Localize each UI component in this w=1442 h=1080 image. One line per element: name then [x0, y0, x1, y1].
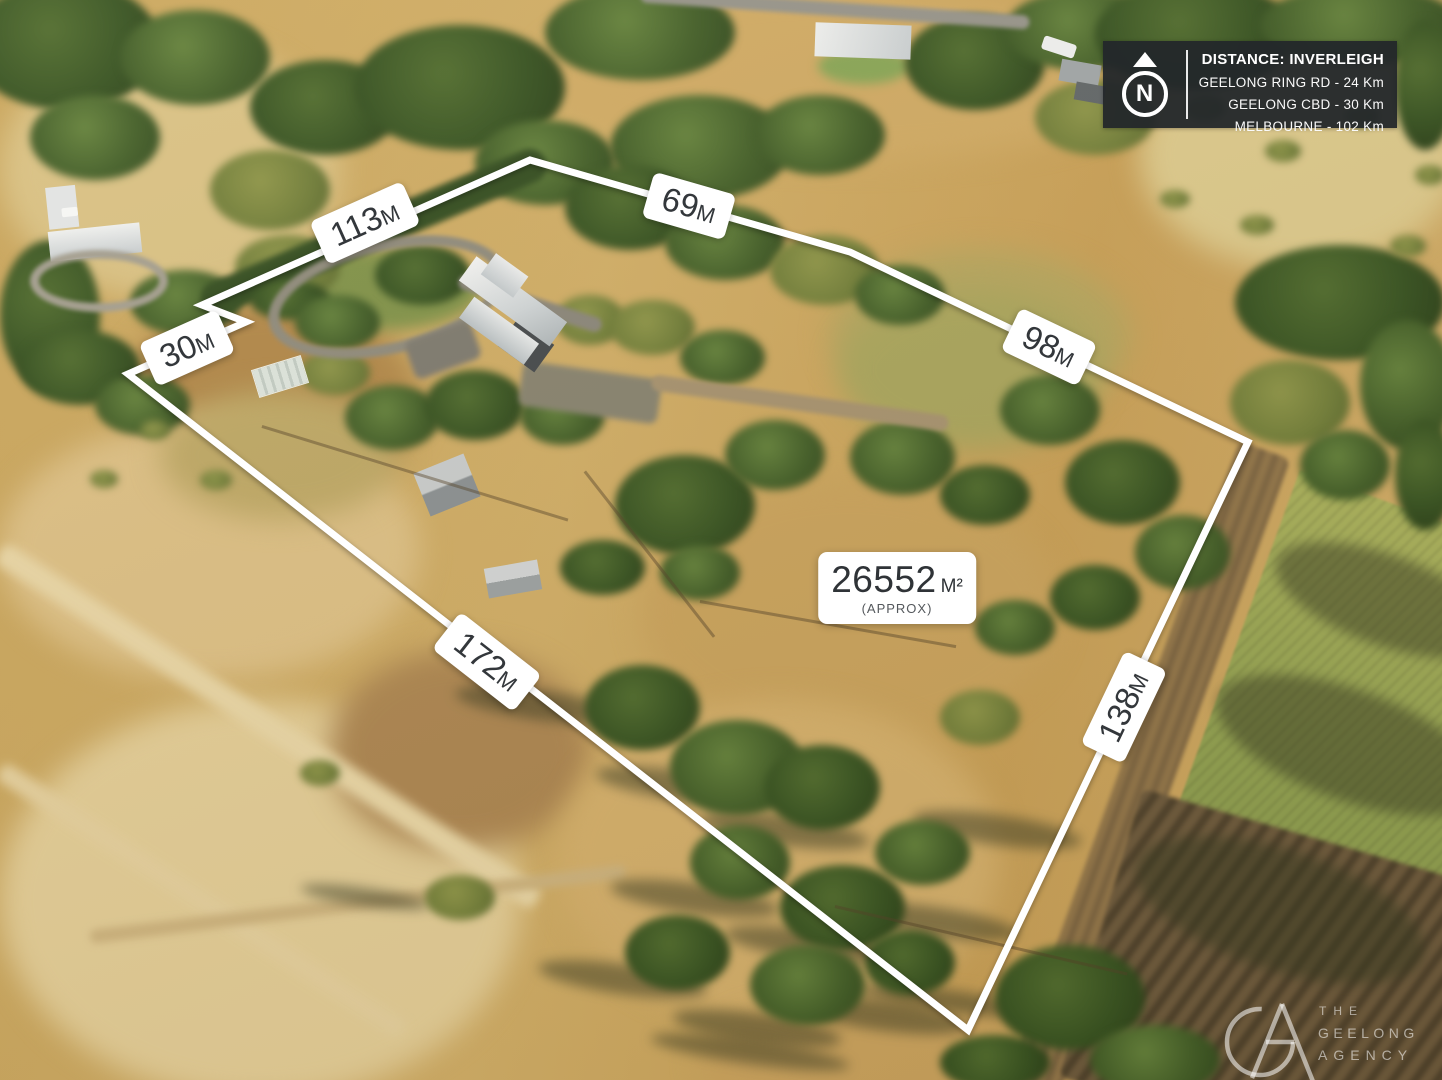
distance-text: DISTANCE: INVERLEIGH GEELONG RING RD - 2…: [1188, 41, 1397, 128]
distance-row: GEELONG RING RD - 24 Km: [1188, 75, 1384, 90]
watermark-line: AGENCY: [1318, 1047, 1413, 1063]
area-qualifier: (APPROX): [831, 601, 963, 616]
compass-circle: N: [1122, 71, 1168, 117]
distance-panel: N DISTANCE: INVERLEIGH GEELONG RING RD -…: [1103, 41, 1397, 128]
agency-logo-icon: [1222, 996, 1322, 1080]
watermark-line: THE: [1319, 1004, 1364, 1018]
aerial-property-photo: 113M 69M 98M 30M 172M 138M 26552M² (APPR…: [0, 0, 1442, 1080]
compass-letter: N: [1136, 80, 1153, 108]
area-value-line: 26552M²: [831, 561, 963, 598]
property-boundary-outline: [0, 0, 1442, 1080]
area-value: 26552: [831, 559, 936, 600]
area-label: 26552M² (APPROX): [818, 552, 976, 624]
distance-row: GEELONG CBD - 30 Km: [1188, 97, 1384, 112]
watermark-line: GEELONG: [1318, 1025, 1419, 1041]
compass-arrow-icon: [1133, 52, 1157, 67]
area-unit: M²: [941, 576, 963, 597]
north-compass-icon: N: [1103, 41, 1186, 128]
distance-title: DISTANCE: INVERLEIGH: [1188, 51, 1384, 68]
boundary-polygon: [128, 160, 1248, 1030]
distance-row: MELBOURNE - 102 Km: [1188, 119, 1384, 134]
